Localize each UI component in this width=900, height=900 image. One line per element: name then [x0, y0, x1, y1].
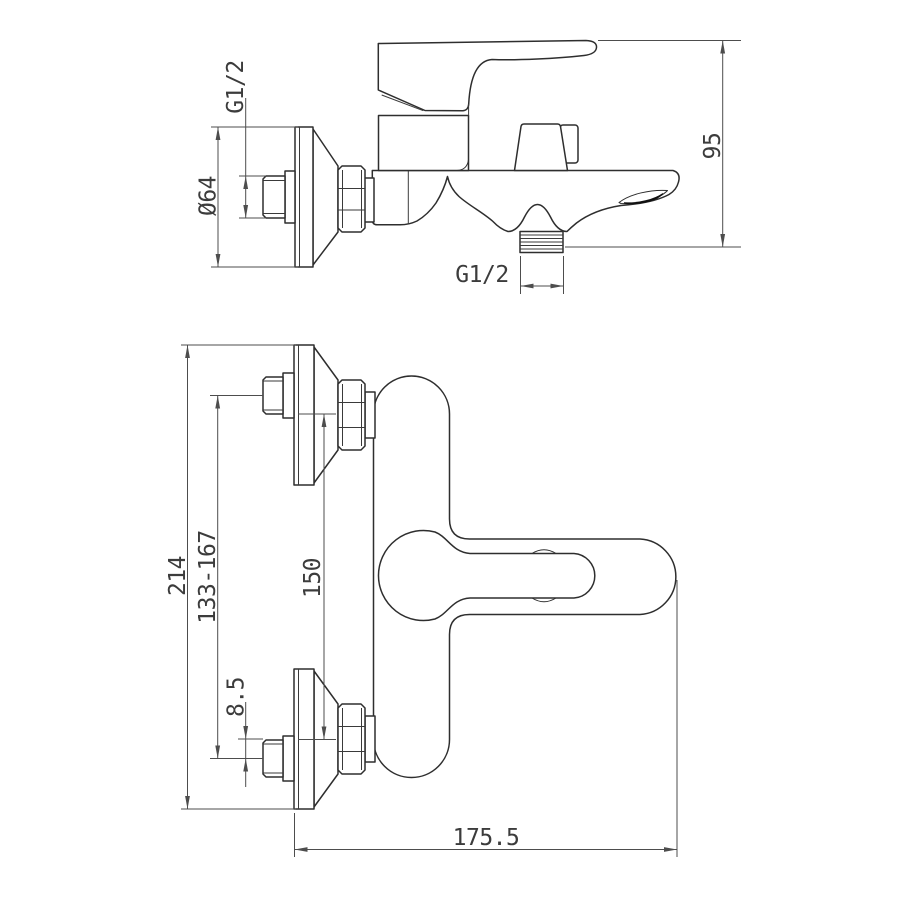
technical-drawing-svg: G1/2 Ø64 95 G1/2	[0, 0, 900, 900]
dim-label-escutcheon-diameter: Ø64	[196, 176, 222, 216]
side-valve-body	[379, 116, 469, 171]
dim-label-height: 95	[700, 133, 726, 160]
dim-label-projection-length: 175.5	[453, 825, 520, 851]
front-wall-mount-top	[263, 345, 375, 485]
dim-label-adjustment-range: 133-167	[195, 530, 221, 623]
dim-outlet-thread: G1/2	[455, 256, 563, 294]
inlet-thread	[263, 740, 283, 777]
dim-eccentric-offset: 8.5	[224, 677, 264, 787]
drawing-page: G1/2 Ø64 95 G1/2	[0, 0, 900, 900]
thread-collar	[283, 736, 294, 781]
side-spout-body	[372, 171, 679, 232]
side-view: G1/2 Ø64 95 G1/2	[196, 41, 742, 295]
side-handle	[378, 41, 596, 111]
dim-inlet-thread: G1/2	[223, 60, 266, 218]
side-diverter-knob	[515, 124, 579, 171]
union-collar	[365, 178, 375, 222]
dim-label-outlet-thread: G1/2	[455, 262, 508, 288]
side-wall-mount	[263, 127, 374, 267]
dim-height-95: 95	[565, 41, 741, 248]
union-collar	[365, 716, 375, 762]
dim-label-pipe-centers: 150	[300, 558, 326, 598]
thread-collar	[285, 171, 295, 223]
escutcheon-cone	[313, 129, 338, 265]
escutcheon-cone	[314, 347, 338, 483]
dim-label-overall-span: 214	[165, 556, 191, 596]
dim-label-eccentric-offset: 8.5	[224, 677, 250, 717]
side-shower-outlet-thread	[520, 232, 563, 253]
union-collar	[365, 392, 375, 438]
inlet-thread	[263, 176, 285, 218]
dim-label-inlet-thread: G1/2	[223, 60, 249, 113]
inlet-thread	[263, 377, 283, 414]
escutcheon-plate	[294, 345, 314, 485]
escutcheon-plate	[295, 127, 313, 267]
front-view: 214 133-167 150 8.5	[165, 345, 677, 857]
thread-collar	[283, 373, 294, 418]
